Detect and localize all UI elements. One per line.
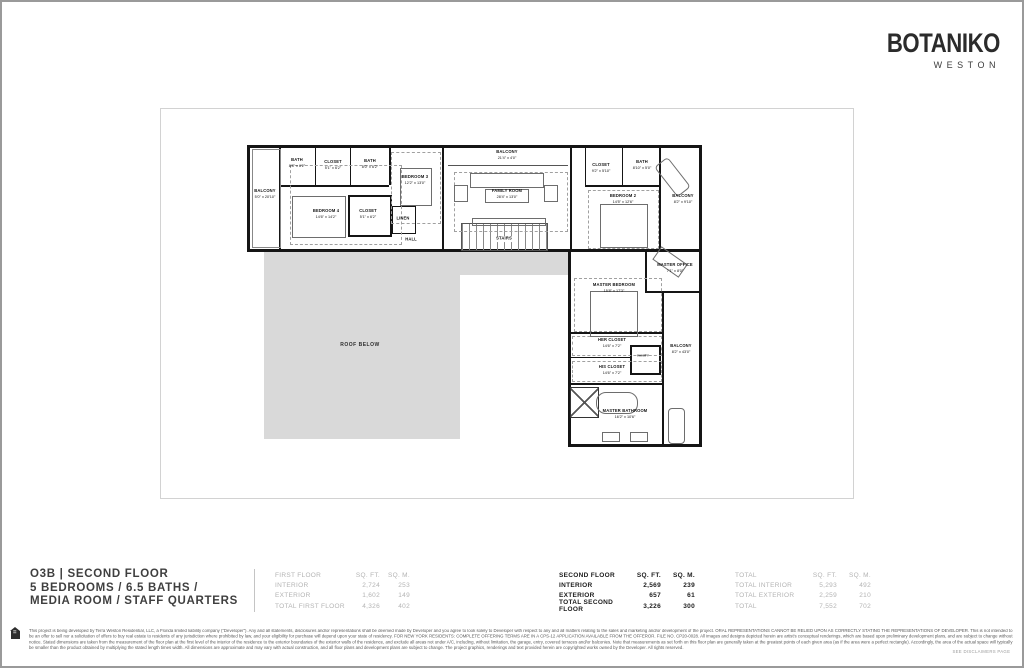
cell-sqm: 61 [661, 592, 695, 599]
first-floor-table: FIRST FLOOR SQ. FT. SQ. M. INTERIOR 2,72… [275, 570, 410, 612]
bed [600, 204, 648, 248]
armchair [454, 185, 468, 202]
column-header: SQ. M. [661, 572, 695, 579]
cell-sqft: 5,293 [811, 582, 837, 589]
wall [585, 185, 661, 187]
room-label-balcony-2: BALCONY 8'2" x 9'10" [672, 194, 693, 204]
room-label-linen: LINEN [396, 216, 409, 221]
cell-sqft: 2,259 [811, 592, 837, 599]
sink [602, 432, 620, 442]
armchair [544, 185, 558, 202]
cell-sqft: 2,569 [635, 582, 661, 589]
room-label-her-closet: HER CLOSET 14'6" x 7'2" [598, 338, 626, 348]
bed [400, 168, 432, 206]
room-label-closet-3: CLOSET 9'2" x 5'10" [592, 163, 611, 173]
column-header: SQ. FT. [347, 572, 380, 579]
balcony-rail [448, 165, 568, 166]
room-label-hall: HALL [405, 237, 417, 242]
bed [590, 291, 638, 337]
cell-sqm: 210 [837, 592, 871, 599]
total-table: TOTAL SQ. FT. SQ. M. TOTAL INTERIOR 5,29… [735, 570, 871, 612]
room-label-balcony-top: BALCONY 21'4" x 4'0" [496, 150, 517, 160]
unit-title-line1: O3B | SECOND FLOOR [30, 568, 238, 582]
room-label-stairs: STAIRS [494, 236, 513, 241]
row-label: TOTAL INTERIOR [735, 582, 811, 589]
room-label-balcony-left: BALCONY 5'0" x 20'10" [254, 189, 275, 199]
room-label-vanity: VANITY [637, 354, 649, 358]
wall [585, 145, 586, 185]
room-label-master-bathroom: MASTER BATHROOM 16'2" x 10'6" [603, 409, 648, 419]
room-label-master-office: MASTER OFFICE 7'1" x 8'0" [657, 263, 693, 273]
cell-sqm: 402 [380, 603, 410, 610]
room-label-family-room: FAMILY ROOM 28'4" x 13'0" [492, 189, 522, 199]
cell-sqm: 702 [837, 603, 871, 610]
column-header: SQ. M. [837, 572, 871, 579]
second-floor-table: SECOND FLOOR SQ. FT. SQ. M. INTERIOR 2,5… [559, 570, 695, 612]
equal-housing-icon [11, 631, 20, 639]
row-label: TOTAL EXTERIOR [735, 592, 811, 599]
room-label-bedroom-2: BEDROOM 2 14'5" x 12'6" [610, 194, 636, 204]
room-label-master-bedroom: MASTER BEDROOM 15'8" x 17'3" [593, 283, 635, 293]
column-header: SECOND FLOOR [559, 572, 635, 579]
sink [630, 432, 648, 442]
wall [568, 444, 702, 447]
cell-sqm: 300 [661, 603, 695, 610]
wall [568, 357, 630, 358]
room-label-bath-1: BATH 8'8" x 6'2" [289, 158, 305, 168]
row-label: INTERIOR [275, 582, 347, 589]
column-header: FIRST FLOOR [275, 572, 347, 579]
column-header: SQ. FT. [635, 572, 661, 579]
wall [699, 145, 702, 252]
cell-sqft: 3,226 [635, 603, 661, 610]
room-label-balcony-master: BALCONY 8'2" x 43'0" [670, 344, 691, 354]
wall [699, 252, 702, 447]
cell-sqm: 492 [837, 582, 871, 589]
wall [570, 145, 572, 249]
cell-sqm: 239 [661, 582, 695, 589]
roof-below-strip [460, 252, 569, 275]
cell-sqft: 7,552 [811, 603, 837, 610]
row-label: TOTAL SECOND FLOOR [559, 599, 635, 613]
lounge-chair [668, 408, 685, 444]
cell-sqm: 253 [380, 582, 410, 589]
cell-sqft: 2,724 [347, 582, 380, 589]
room-label-bath-2: BATH 8'0" x 6'2" [362, 159, 378, 169]
unit-title: O3B | SECOND FLOOR 5 BEDROOMS / 6.5 BATH… [30, 568, 238, 609]
disclaimers-page-note: SEE DISCLAIMERS PAGE [952, 650, 1010, 654]
wall [662, 293, 664, 444]
row-label: EXTERIOR [275, 592, 347, 599]
row-label: INTERIOR [559, 582, 635, 589]
wall [247, 145, 250, 252]
roof-below-label: ROOF BELOW [340, 342, 379, 348]
wall [568, 383, 662, 385]
unit-title-line3: MEDIA ROOM / STAFF QUARTERS [30, 595, 238, 609]
room-label-bedroom-4: BEDROOM 4 14'6" x 14'2" [313, 209, 339, 219]
column-header: SQ. FT. [811, 572, 837, 579]
room-label-closet-top: CLOSET 5'1" x 6'2" [324, 160, 342, 170]
cell-sqft: 657 [635, 592, 661, 599]
media-console [472, 218, 546, 226]
sofa [470, 173, 544, 188]
brand-logo: BOTANIKO WESTON [862, 28, 1000, 70]
unit-title-line2: 5 BEDROOMS / 6.5 BATHS / [30, 582, 238, 596]
brand-location: WESTON [862, 60, 1000, 70]
column-header: TOTAL [735, 572, 811, 579]
room-label-bedroom-3: BEDROOM 3 12'2" x 13'0" [402, 175, 428, 185]
cell-sqft: 1,602 [347, 592, 380, 599]
wall [442, 145, 444, 249]
title-divider [254, 569, 255, 612]
shower-box [570, 387, 599, 418]
disclaimer-text: This project is being developed by Terra… [29, 629, 1013, 652]
brand-name: BOTANIKO [887, 28, 1000, 59]
row-label: TOTAL FIRST FLOOR [275, 603, 347, 610]
brochure-page: BOTANIKO WESTON [0, 0, 1024, 668]
column-header: SQ. M. [380, 572, 410, 579]
room-label-bath-3: BATH 8'10" x 5'0" [633, 160, 652, 170]
row-label: TOTAL [735, 603, 811, 610]
cell-sqft: 4,326 [347, 603, 380, 610]
room-label-his-closet: HIS CLOSET 14'6" x 7'2" [599, 365, 625, 375]
wall [622, 145, 623, 185]
disclaimer: This project is being developed by Terra… [29, 629, 1013, 655]
cell-sqm: 149 [380, 592, 410, 599]
room-label-closet-2: CLOSET 5'1" x 6'2" [359, 209, 377, 219]
